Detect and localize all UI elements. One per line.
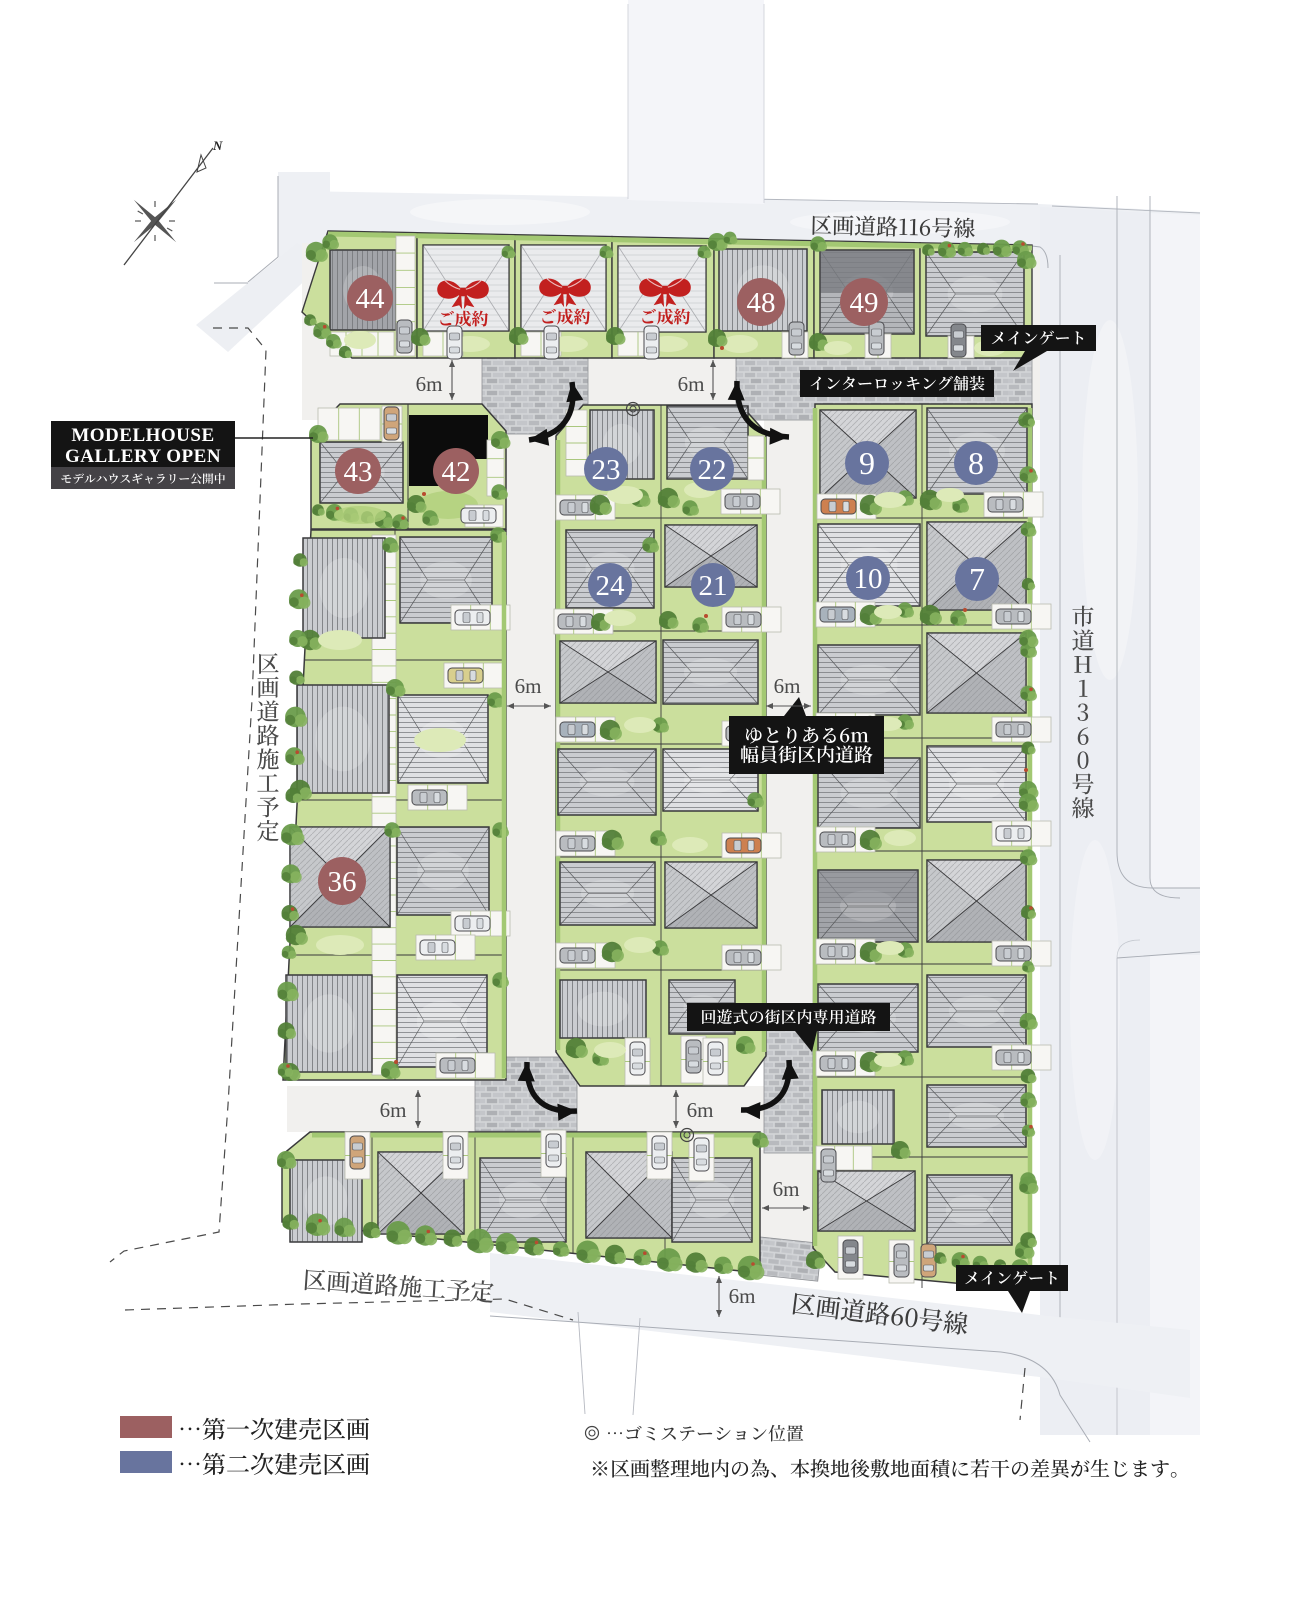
svg-text:GALLERY OPEN: GALLERY OPEN	[65, 446, 221, 467]
svg-text:7: 7	[969, 561, 985, 597]
svg-text:6m: 6m	[773, 1177, 800, 1201]
svg-text:48: 48	[747, 287, 776, 319]
svg-text:49: 49	[850, 287, 879, 319]
svg-text:MODELHOUSE: MODELHOUSE	[71, 425, 214, 446]
svg-text:6m: 6m	[416, 372, 443, 396]
svg-text:6m: 6m	[678, 372, 705, 396]
svg-text:6m: 6m	[774, 674, 801, 698]
svg-text:8: 8	[968, 445, 984, 481]
svg-text:21: 21	[699, 570, 728, 602]
svg-text:6m: 6m	[729, 1284, 756, 1308]
svg-text:N: N	[212, 138, 223, 153]
svg-text:44: 44	[356, 283, 386, 315]
svg-text:6m: 6m	[687, 1098, 714, 1122]
svg-text:42: 42	[442, 456, 471, 488]
svg-text:22: 22	[698, 454, 727, 486]
svg-text:43: 43	[344, 456, 373, 488]
svg-text:9: 9	[859, 445, 875, 481]
svg-text:24: 24	[596, 570, 626, 602]
svg-text:6m: 6m	[380, 1098, 407, 1122]
svg-text:36: 36	[328, 866, 357, 898]
svg-text:6m: 6m	[515, 674, 542, 698]
svg-text:10: 10	[854, 563, 883, 595]
svg-text:23: 23	[592, 454, 621, 486]
